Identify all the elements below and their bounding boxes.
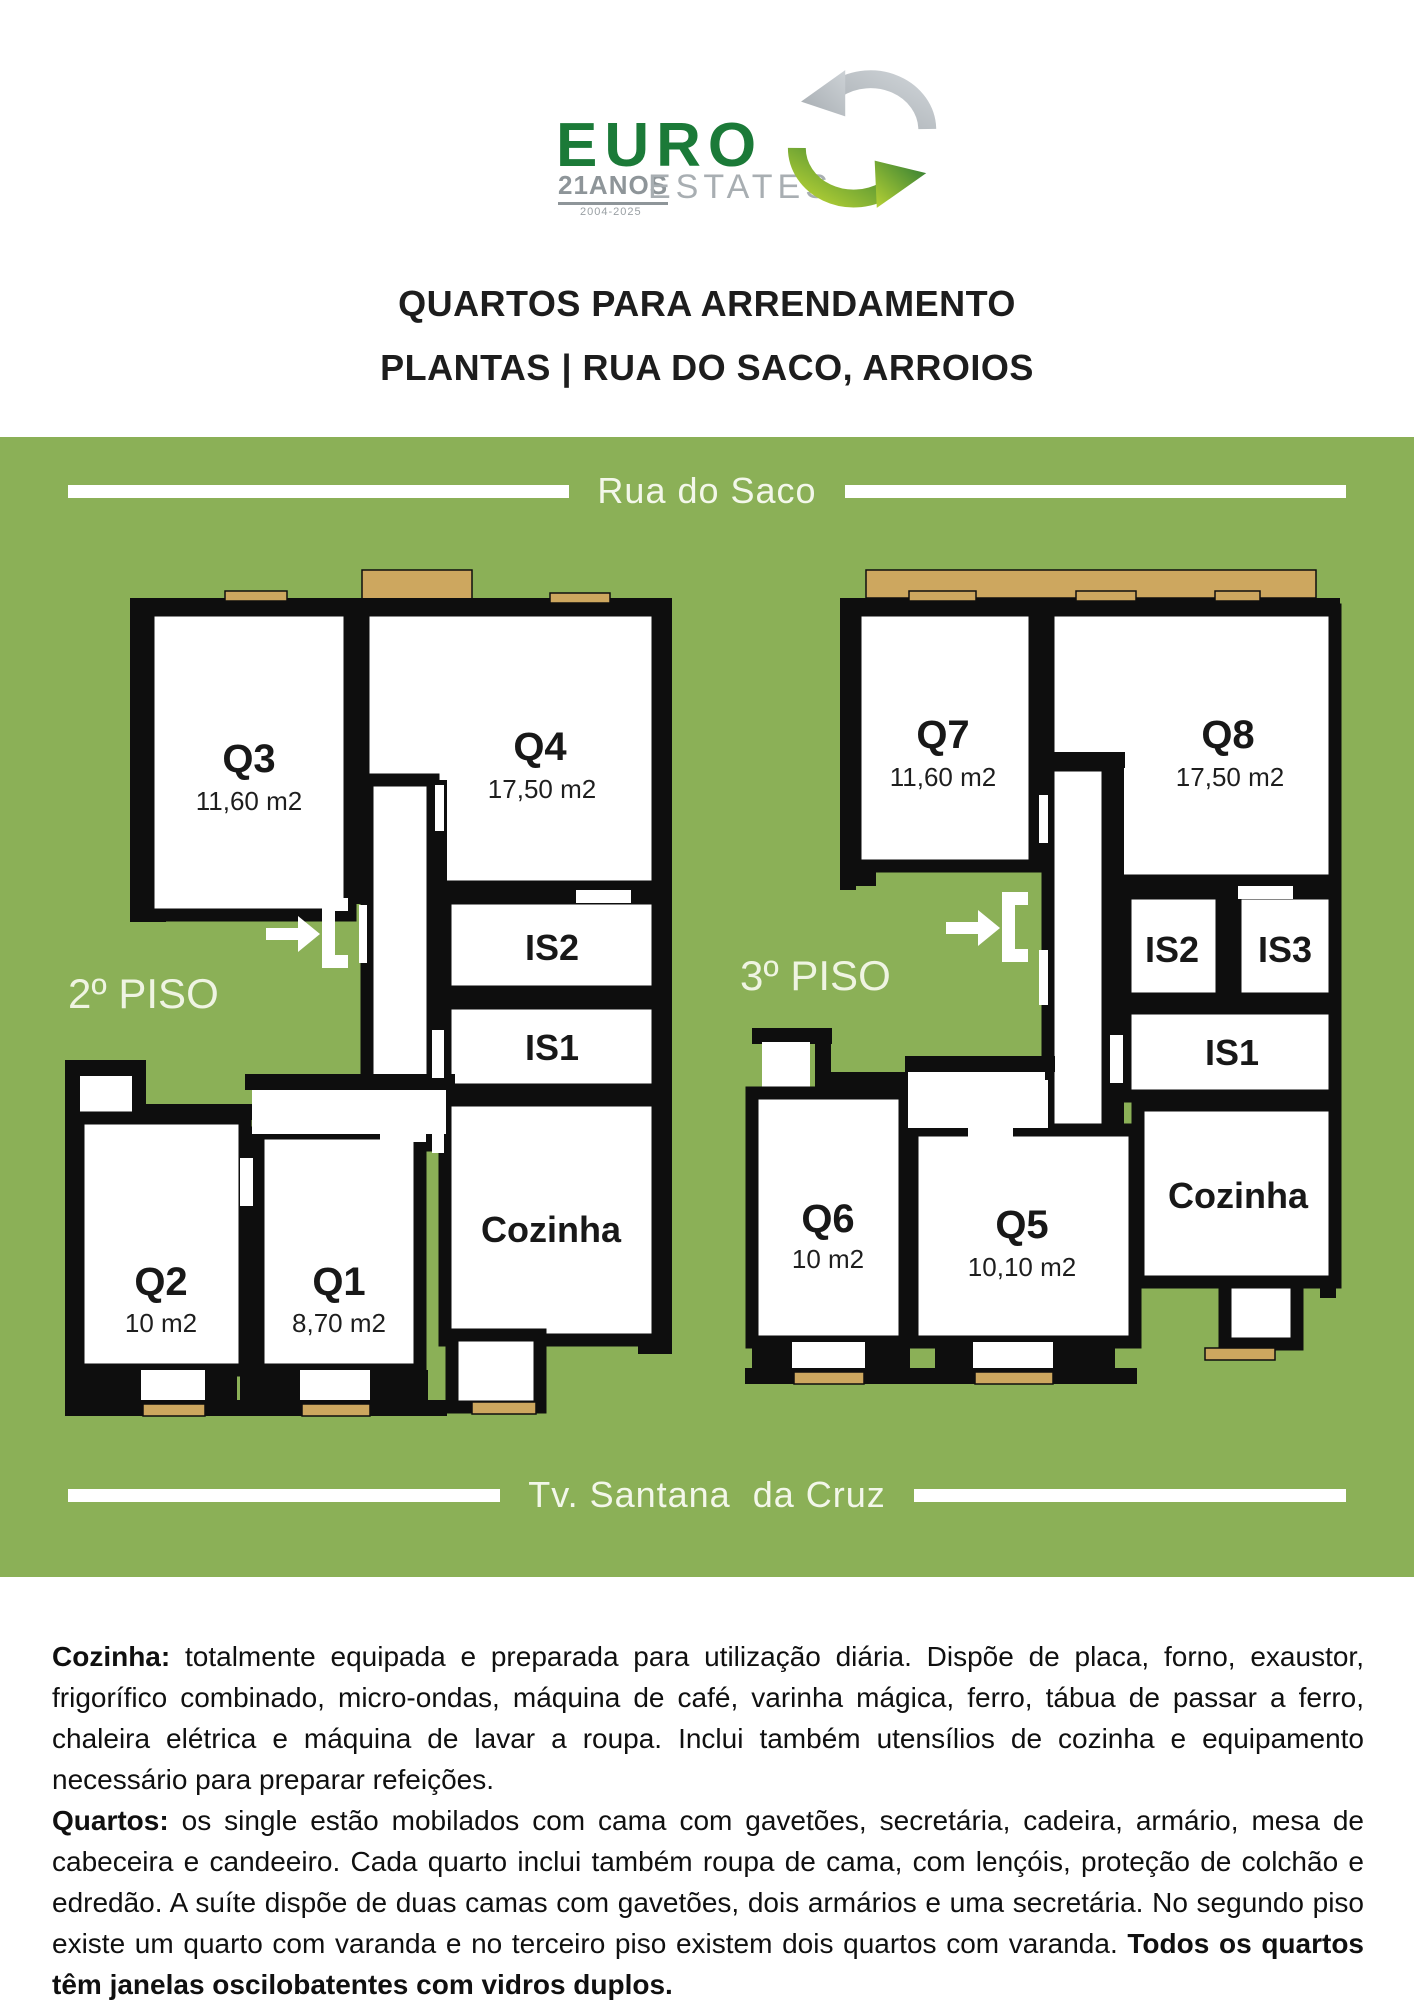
room-label-q3: Q3	[222, 737, 275, 781]
plan3-bottom-windows	[745, 1342, 1275, 1384]
flyer-page: EURO 21ANOS 2004-2025 ESTATES QUARTOS PA…	[0, 0, 1414, 2000]
hallway	[908, 1072, 1045, 1128]
street-name-bottom: Tv. Santana da Cruz	[528, 1474, 886, 1516]
room-label-is1: IS1	[1205, 1032, 1259, 1073]
entry-door-icon	[322, 898, 348, 968]
room-area-q3: 11,60 m2	[196, 786, 302, 816]
room-area-q6: 10 m2	[792, 1244, 864, 1274]
paragraph-cozinha-label: Cozinha:	[52, 1641, 170, 1672]
street-name-top: Rua do Saco	[597, 470, 816, 512]
room-label-q5: Q5	[995, 1203, 1048, 1247]
room-area-q7: 11,60 m2	[890, 762, 996, 792]
hallway	[252, 1090, 446, 1134]
street-label-bottom: Tv. Santana da Cruz	[0, 1477, 1414, 1513]
plan3-entry-icon	[946, 892, 1028, 962]
paragraph-cozinha-text: totalmente equipada e preparada para uti…	[52, 1641, 1364, 1795]
room-area-q5: 10,10 m2	[968, 1252, 1076, 1282]
euro-estates-logo: EURO 21ANOS 2004-2025 ESTATES	[556, 76, 956, 221]
floorplan-2-piso: 2º PISO Q3 11,60 m2 Q4 17,50 m2 IS2 IS1 …	[55, 560, 680, 1425]
room-label-is2: IS2	[525, 927, 579, 968]
street-bar-right	[914, 1489, 1346, 1502]
floorplan-board: Rua do Saco	[0, 437, 1414, 1577]
room-label-cozinha: Cozinha	[481, 1209, 622, 1250]
balcony	[362, 570, 472, 600]
street-label-top: Rua do Saco	[0, 473, 1414, 509]
room-label-q8: Q8	[1201, 713, 1254, 757]
street-bar-left	[68, 485, 569, 498]
entry-door-icon	[1002, 892, 1028, 962]
floor-label-3piso: 3º PISO	[740, 952, 891, 999]
title-line1: QUARTOS PARA ARRENDAMENTO	[0, 272, 1414, 336]
floor-label-2piso: 2º PISO	[68, 970, 219, 1017]
street-bar-left	[68, 1489, 500, 1502]
room-area-q4: 17,50 m2	[488, 774, 596, 804]
room-label-is1: IS1	[525, 1027, 579, 1068]
entry-arrow-icon	[946, 910, 1000, 946]
page-title: QUARTOS PARA ARRENDAMENTO PLANTAS | RUA …	[0, 272, 1414, 400]
room-label-is3: IS3	[1258, 929, 1312, 970]
room-label-q7: Q7	[916, 713, 969, 757]
paragraph-cozinha: Cozinha: totalmente equipada e preparada…	[52, 1636, 1364, 1800]
corridor	[1048, 765, 1108, 1173]
room-label-q1: Q1	[312, 1260, 365, 1304]
paragraph-quartos: Quartos: os single estão mobilados com c…	[52, 1800, 1364, 2000]
room-label-q4: Q4	[513, 725, 567, 769]
street-bar-right	[845, 485, 1346, 498]
room-label-q2: Q2	[134, 1260, 187, 1304]
room-label-is2: IS2	[1145, 929, 1199, 970]
cozinha-window-bay	[452, 1335, 540, 1407]
room-label-cozinha: Cozinha	[1168, 1175, 1309, 1216]
paragraph-quartos-label: Quartos:	[52, 1805, 169, 1836]
room-area-q1: 8,70 m2	[292, 1308, 386, 1338]
cozinha-window-bay	[1225, 1282, 1297, 1344]
title-line2: PLANTAS | RUA DO SACO, ARROIOS	[0, 336, 1414, 400]
room-area-q8: 17,50 m2	[1176, 762, 1284, 792]
logo-year-range: 2004-2025	[580, 206, 642, 218]
floorplan-3-piso: 3º PISO Q7 11,60 m2 Q8 17,50 m2 IS2 IS3 …	[725, 560, 1365, 1425]
room-label-q6: Q6	[801, 1197, 854, 1241]
room-area-q2: 10 m2	[125, 1308, 197, 1338]
swoosh-arrows-icon	[782, 68, 940, 210]
